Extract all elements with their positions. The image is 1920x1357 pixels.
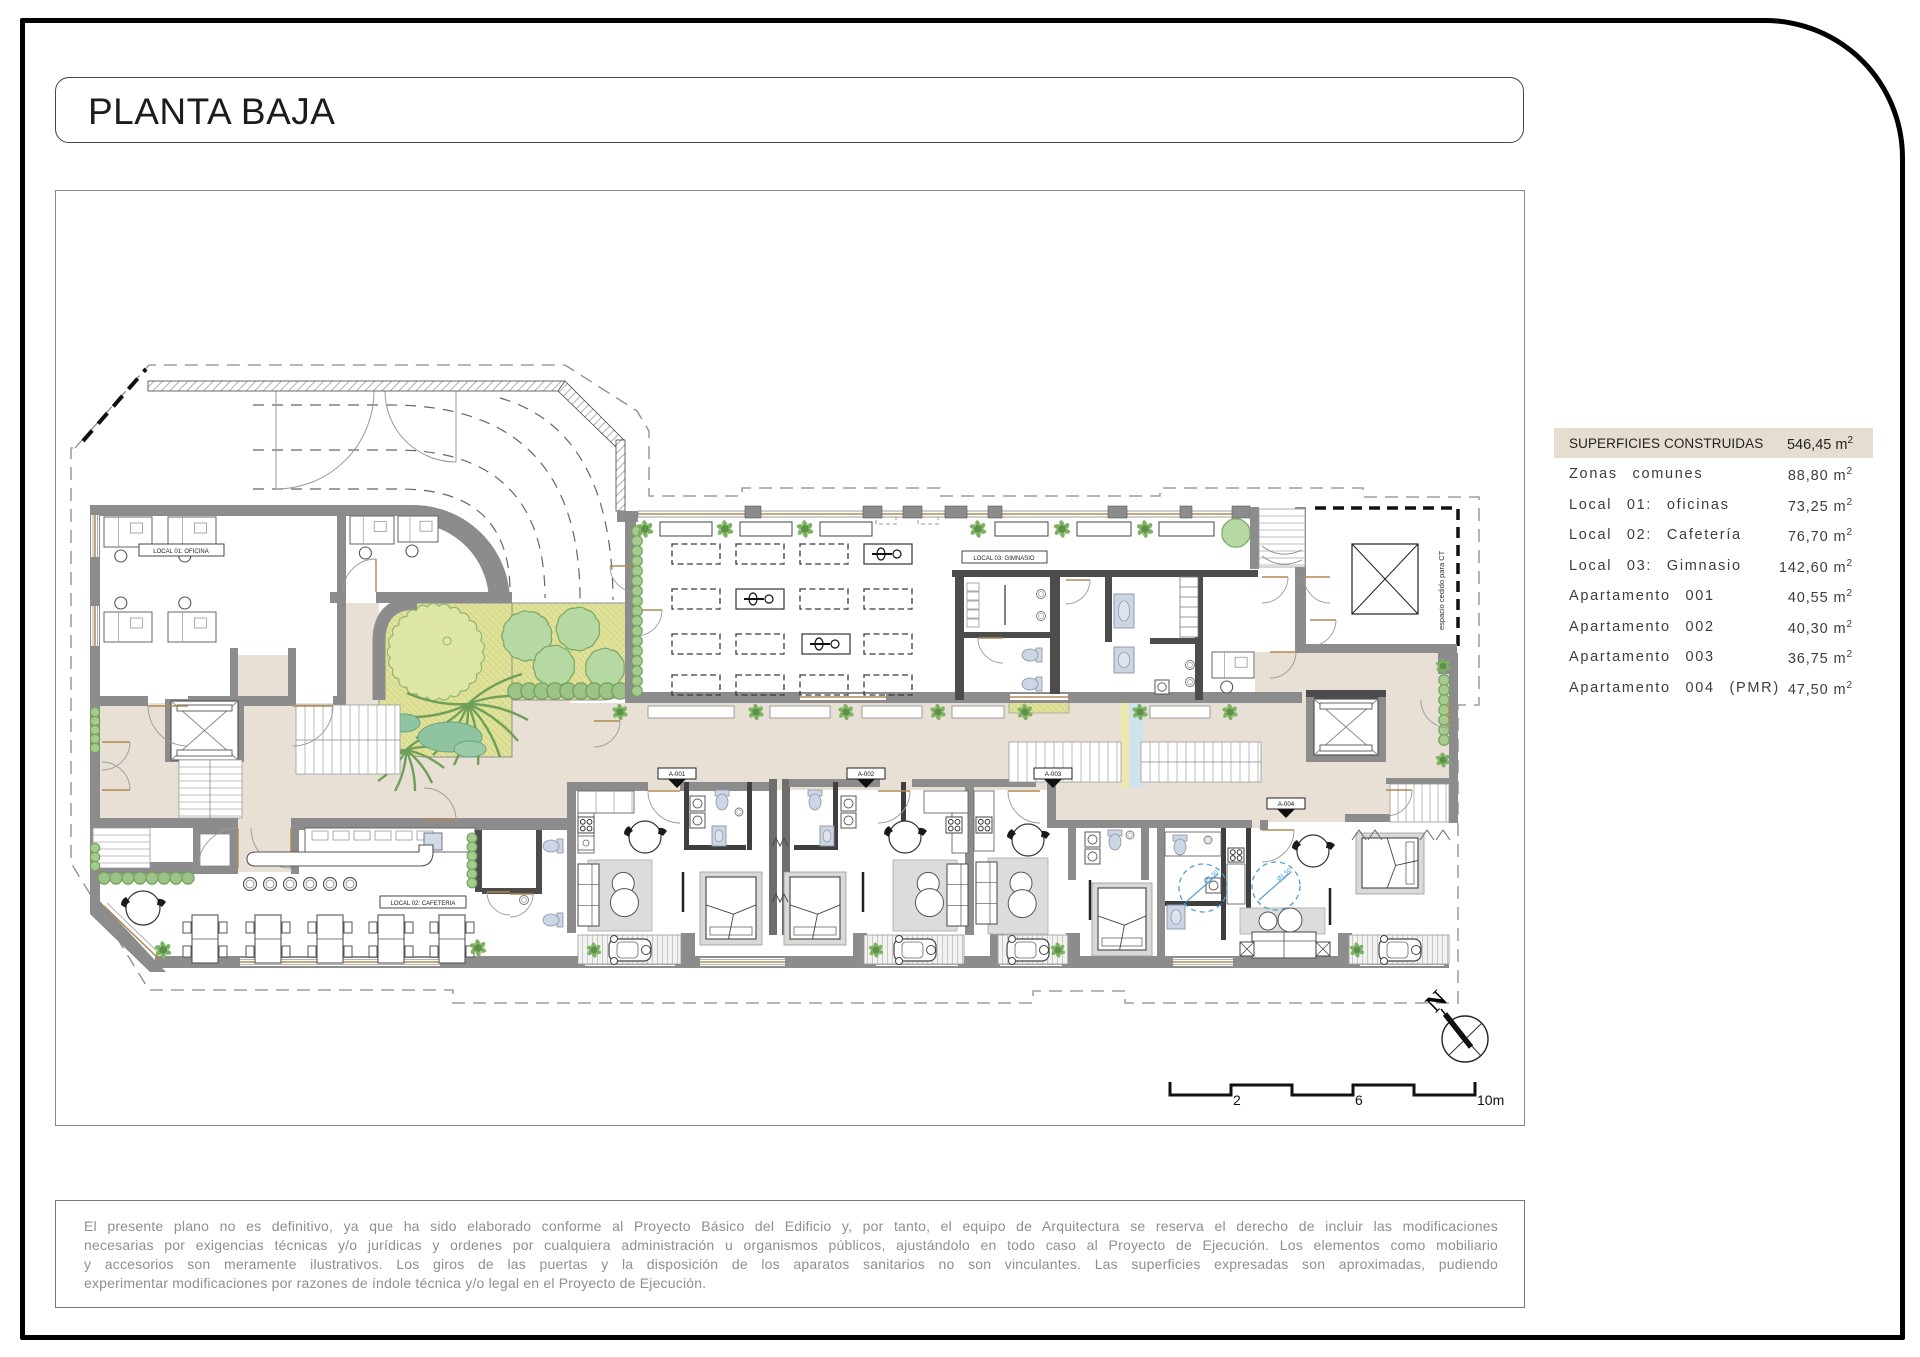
svg-text:A-001: A-001 (669, 771, 686, 778)
svg-text:Ø1,50: Ø1,50 (1276, 867, 1293, 883)
svg-text:LOCAL 01: OFICINA: LOCAL 01: OFICINA (153, 549, 208, 555)
svg-text:espacio cedido para CT: espacio cedido para CT (1437, 550, 1446, 630)
svg-text:10m: 10m (1477, 1092, 1504, 1108)
svg-text:2: 2 (1233, 1092, 1241, 1108)
svg-text:A-002: A-002 (858, 771, 875, 778)
svg-text:A-003: A-003 (1045, 771, 1062, 778)
svg-text:LOCAL 02: CAFETERIA: LOCAL 02: CAFETERIA (391, 901, 456, 907)
svg-text:6: 6 (1355, 1092, 1363, 1108)
svg-text:LOCAL 03: GIMNASIO: LOCAL 03: GIMNASIO (973, 556, 1034, 562)
svg-text:A-004: A-004 (1278, 801, 1295, 808)
svg-text:N: N (1421, 986, 1453, 1018)
